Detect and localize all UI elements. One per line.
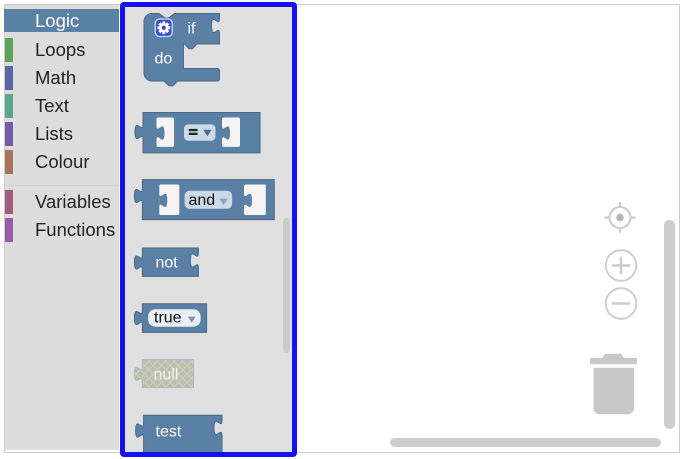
svg-text:true: true <box>154 310 182 327</box>
svg-text:not: not <box>156 255 179 272</box>
svg-text:do: do <box>155 51 173 68</box>
svg-text:if: if <box>188 21 197 38</box>
svg-text:null: null <box>154 367 179 384</box>
svg-text:test: test <box>156 424 182 441</box>
svg-text:and: and <box>189 192 216 209</box>
